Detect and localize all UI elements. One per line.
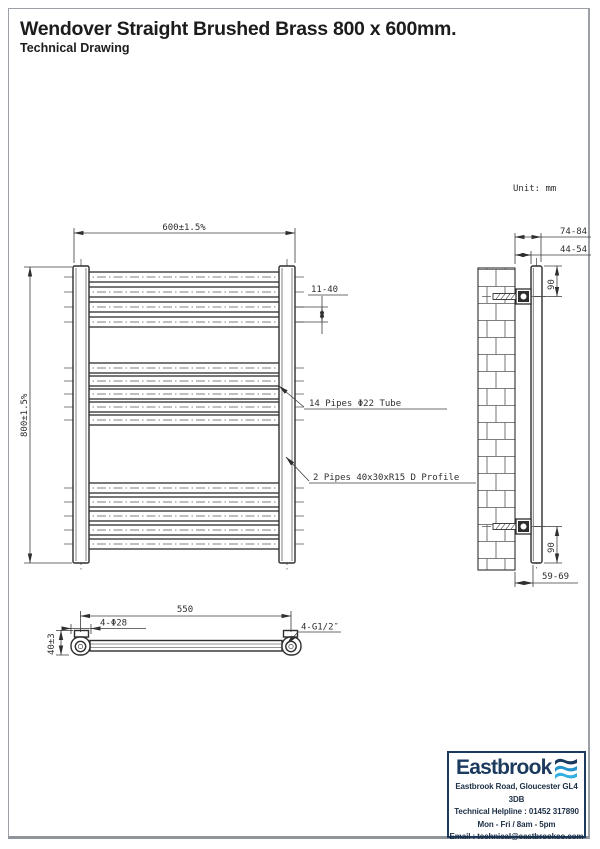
depth-extensions [56,631,73,656]
brand-logo-text: Eastbrook [456,756,552,780]
brand-hours: Mon - Fri / 8am - 5pm [449,819,584,832]
brand-address: Eastbrook Road, Gloucester GL4 3DB [449,781,584,806]
depth-outer-text: 74-84 [560,227,587,237]
cap-dimension-text: 4-Φ28 [100,619,127,629]
unit-label: Unit: mm [513,184,556,194]
brand-helpline: Technical Helpline : 01452 317890 [449,806,584,819]
brand-box: Eastbrook Eastbrook Road, Gloucester GL4… [447,751,586,838]
bottom-offset-text: 59-69 [542,572,569,582]
top-bracket-hole [521,294,527,300]
depth-outer-extensions [515,233,541,264]
left-cap-tab [75,631,89,638]
right-cap-tab [284,631,298,638]
brand-email: Email : technical@eastbrookco.com [449,831,584,844]
bottom-offset-extensions [515,565,533,587]
side-profile [531,266,542,563]
bottom-bracket-text: 90 [547,542,557,553]
depth-inner-text: 44-54 [560,245,587,255]
pipes [64,272,304,549]
plan-view: 550 4-Φ28 40±3 4-G1/2″ [47,605,341,655]
side-view: 74-84 44-54 90 90 59-69 [478,227,591,587]
height-dimension-text: 800±1.5% [20,393,30,437]
centres-dimension-text: 550 [177,605,193,615]
right-rail [279,266,295,563]
bottom-bracket-hole [521,524,527,530]
pitch-dimension-text: 11-40 [311,285,338,295]
left-rail [73,266,89,563]
pitch-extension-lines [296,307,328,322]
connection-label: 4-G1/2″ [301,623,339,633]
height-extension-lines [24,267,72,563]
technical-drawing-page: Wendover Straight Brushed Brass 800 x 60… [0,0,600,849]
drawing-canvas: Unit: mm 600±1.5% 800±1.5% 11-40 [0,0,600,849]
eastbrook-waves-icon [554,756,578,780]
width-dimension-text: 600±1.5% [162,223,206,233]
plan-depth-text: 40±3 [47,633,57,655]
front-view: 600±1.5% 800±1.5% 11-40 14 Pipes Φ22 Tub… [20,223,476,571]
profile-label: 2 Pipes 40x30xR15 D Profile [313,473,459,483]
top-bracket-text: 90 [547,279,557,290]
plan-bar [90,641,282,652]
pipes-label: 14 Pipes Φ22 Tube [309,399,401,409]
